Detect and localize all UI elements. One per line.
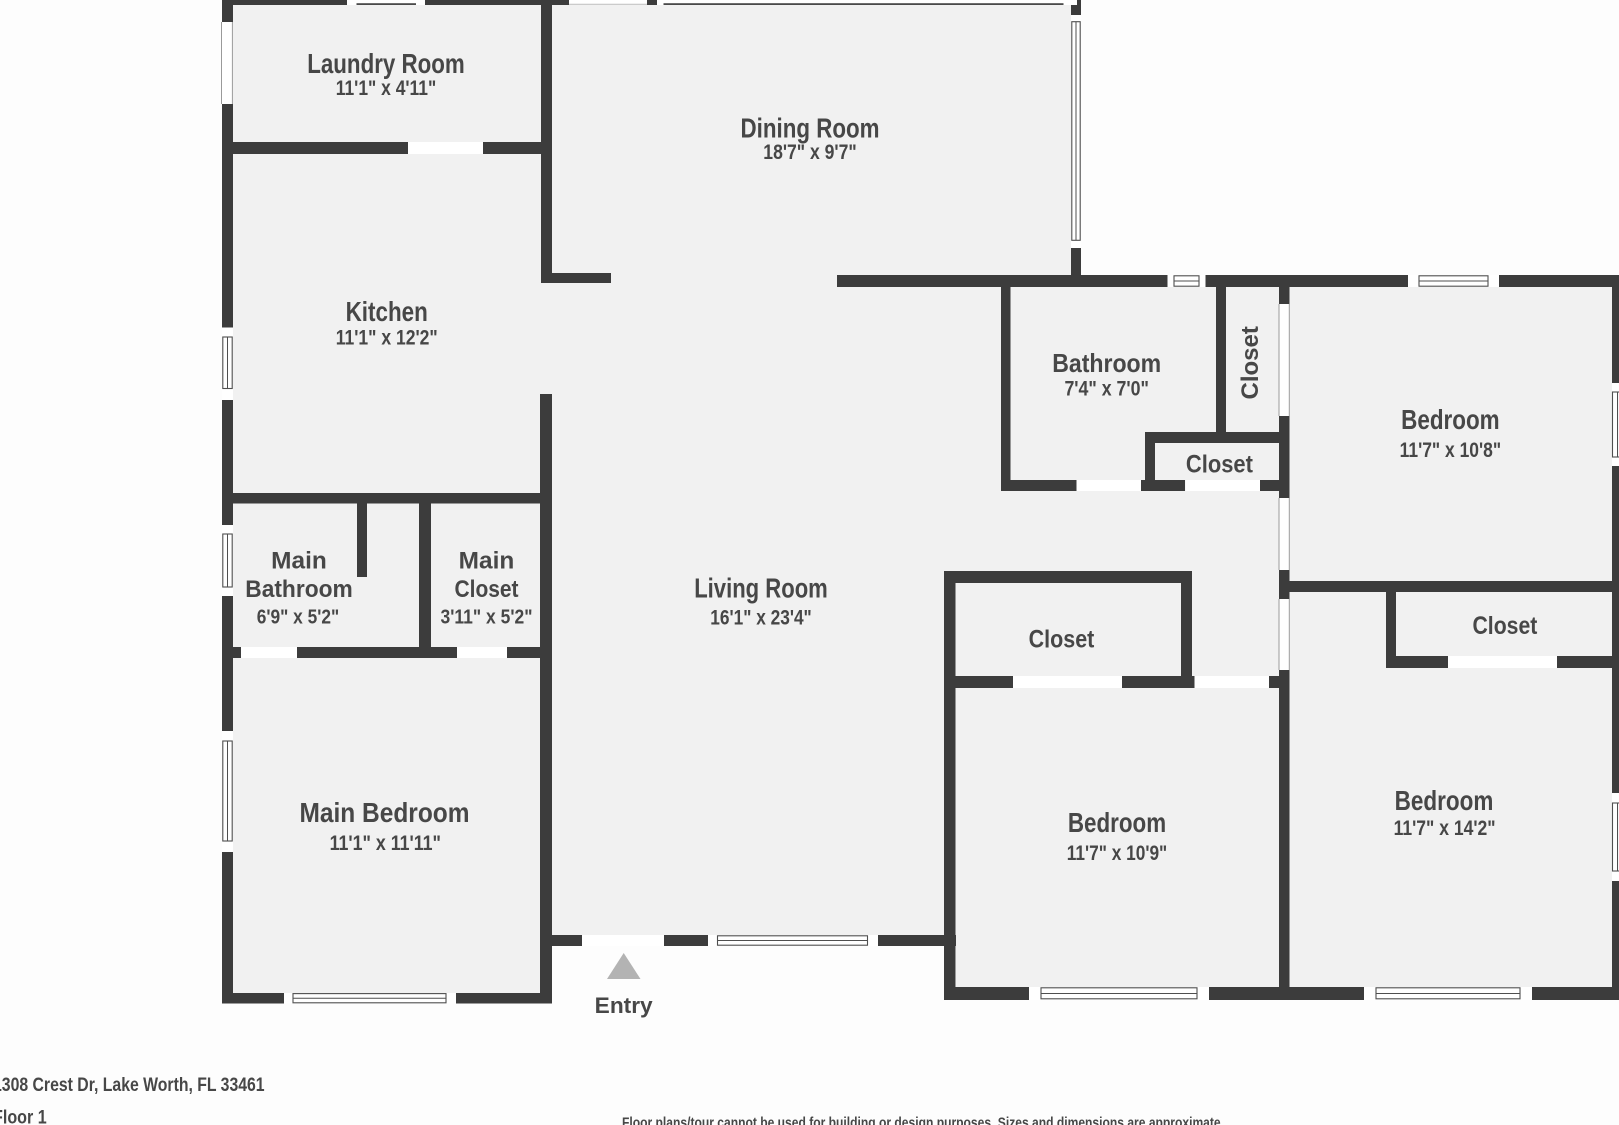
svg-text:Main: Main	[271, 548, 327, 575]
svg-text:Closet: Closet	[1029, 626, 1095, 654]
svg-text:Living Room: Living Room	[694, 573, 828, 604]
svg-text:6'9" x 5'2": 6'9" x 5'2"	[257, 606, 340, 628]
svg-text:Closet: Closet	[1186, 451, 1254, 479]
svg-text:Closet: Closet	[1237, 326, 1264, 399]
svg-text:Closet: Closet	[455, 576, 519, 603]
svg-text:11'1" x 11'11": 11'1" x 11'11"	[330, 832, 441, 855]
svg-text:Bedroom: Bedroom	[1401, 404, 1500, 435]
svg-text:Kitchen: Kitchen	[346, 296, 428, 327]
svg-text:Main: Main	[459, 548, 515, 575]
svg-text:7'4" x 7'0": 7'4" x 7'0"	[1064, 378, 1149, 401]
svg-text:16'1" x 23'4": 16'1" x 23'4"	[710, 607, 812, 630]
svg-text:11'1" x 12'2": 11'1" x 12'2"	[336, 326, 438, 349]
svg-text:1308 Crest Dr, Lake Worth, FL: 1308 Crest Dr, Lake Worth, FL 33461	[0, 1074, 265, 1096]
svg-text:Closet: Closet	[1473, 612, 1538, 640]
svg-text:Laundry Room: Laundry Room	[307, 48, 465, 79]
svg-text:Bedroom: Bedroom	[1068, 807, 1166, 838]
svg-text:11'7" x 10'9": 11'7" x 10'9"	[1067, 842, 1168, 865]
svg-text:Floor 1: Floor 1	[0, 1106, 47, 1125]
svg-text:Bathroom: Bathroom	[1052, 348, 1161, 378]
svg-text:18'7" x 9'7": 18'7" x 9'7"	[763, 141, 856, 164]
svg-text:Dining Room: Dining Room	[741, 113, 880, 144]
svg-text:3'11" x 5'2": 3'11" x 5'2"	[441, 606, 533, 628]
svg-text:Entry: Entry	[595, 993, 654, 1018]
svg-text:Bedroom: Bedroom	[1395, 785, 1494, 816]
svg-text:11'7" x 14'2": 11'7" x 14'2"	[1394, 817, 1496, 840]
svg-text:Main Bedroom: Main Bedroom	[300, 797, 470, 828]
svg-text:11'1" x 4'11": 11'1" x 4'11"	[336, 77, 437, 100]
svg-text:11'7" x 10'8": 11'7" x 10'8"	[1400, 439, 1502, 462]
svg-text:Floor plans/tour cannot be use: Floor plans/tour cannot be used for buil…	[622, 1116, 1224, 1125]
svg-text:Bathroom: Bathroom	[245, 576, 353, 603]
